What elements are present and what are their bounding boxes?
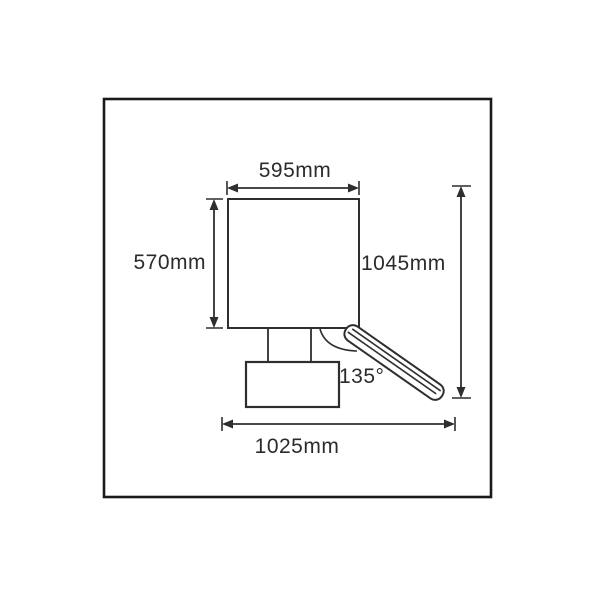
dim-label-angle: 135° (339, 366, 384, 387)
dim-label-bottom-width: 1025mm (233, 436, 361, 457)
dim-bottom-arrow-left (222, 420, 233, 429)
dim-left-arrow-top (210, 199, 219, 210)
dim-right-arrow-top (457, 186, 466, 197)
base-block-outline (246, 362, 339, 407)
reclined-panel (341, 322, 447, 403)
dim-left-arrow-bottom (210, 317, 219, 328)
dim-bottom-arrow-right (444, 420, 455, 429)
dimension-drawing: 595mm 570mm 1045mm 135° 1025mm (0, 0, 600, 600)
dim-top-arrow-right (348, 184, 359, 193)
diagram-linework (0, 0, 600, 600)
dim-label-right-height: 1045mm (361, 253, 446, 274)
dim-top-arrow-left (227, 184, 238, 193)
dim-right-arrow-bottom (457, 387, 466, 398)
dim-label-left-height: 570mm (118, 252, 206, 273)
dim-label-top-width: 595mm (230, 160, 360, 181)
main-body-outline (228, 199, 359, 328)
